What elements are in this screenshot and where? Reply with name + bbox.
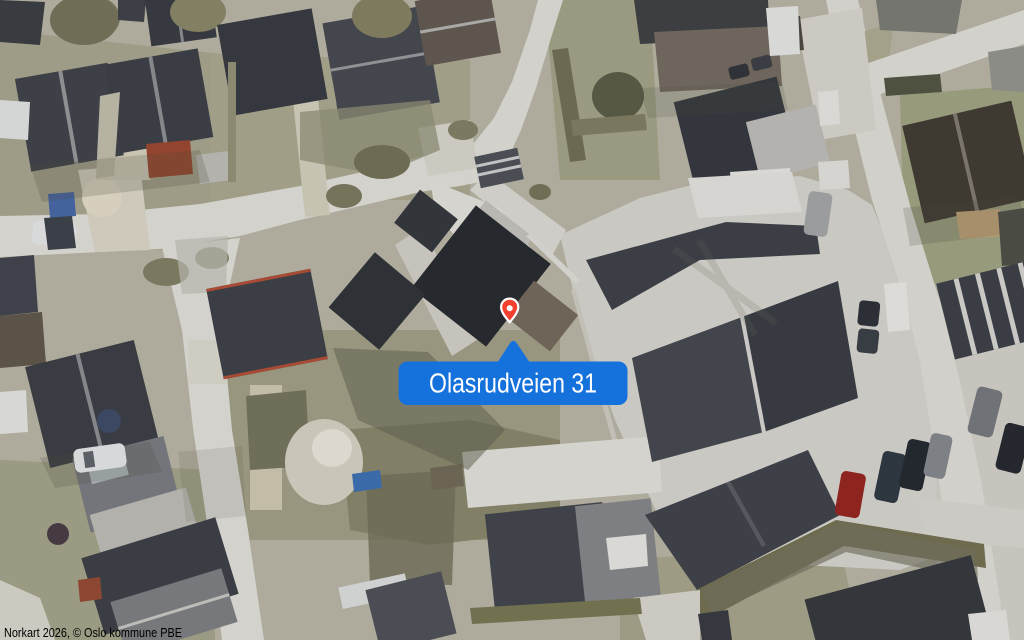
svg-text:Norkart 2026, © Oslo kommune P: Norkart 2026, © Oslo kommune PBE — [4, 626, 182, 640]
svg-text:Olasrudveien 31: Olasrudveien 31 — [429, 368, 597, 399]
